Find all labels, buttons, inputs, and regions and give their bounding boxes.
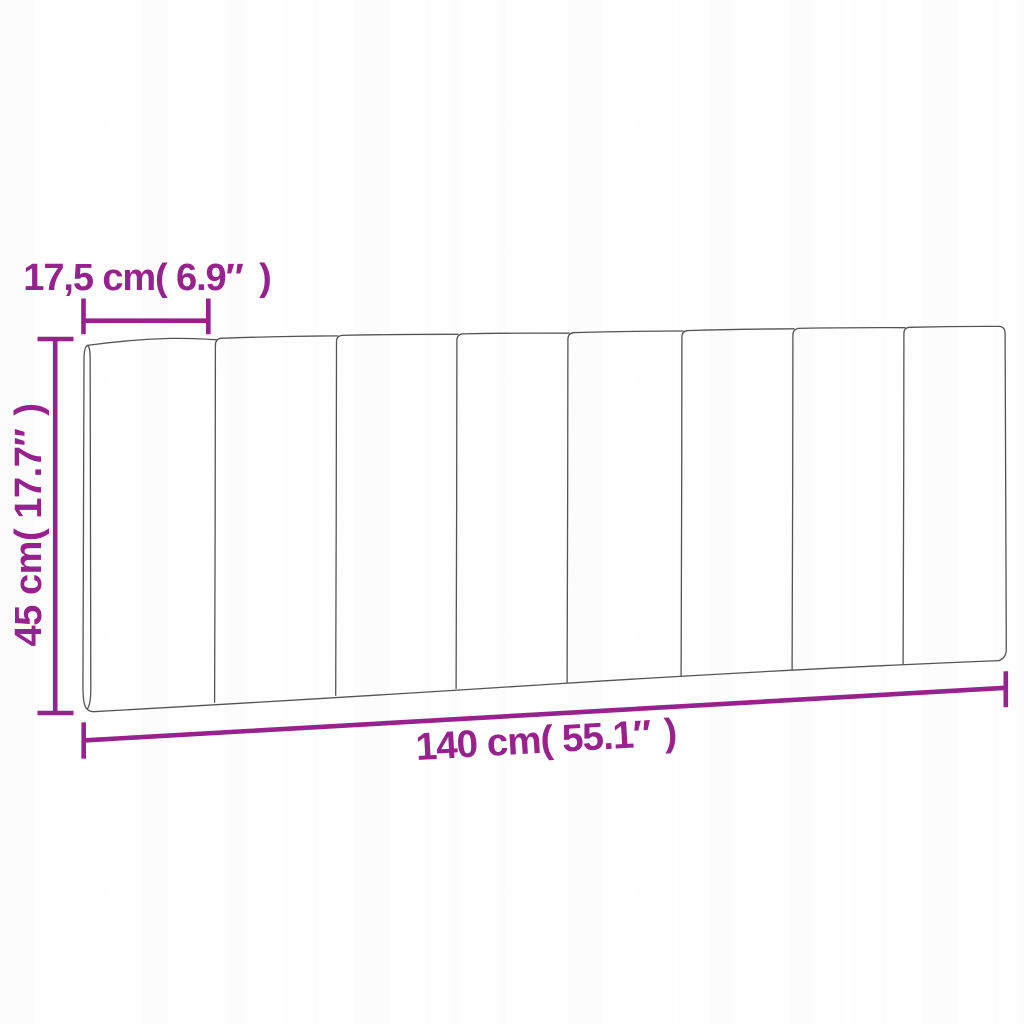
svg-text:17,5 cm( 6.9″ ): 17,5 cm( 6.9″ ) bbox=[23, 257, 270, 299]
svg-text:45 cm( 17.7″ ): 45 cm( 17.7″ ) bbox=[8, 403, 50, 646]
